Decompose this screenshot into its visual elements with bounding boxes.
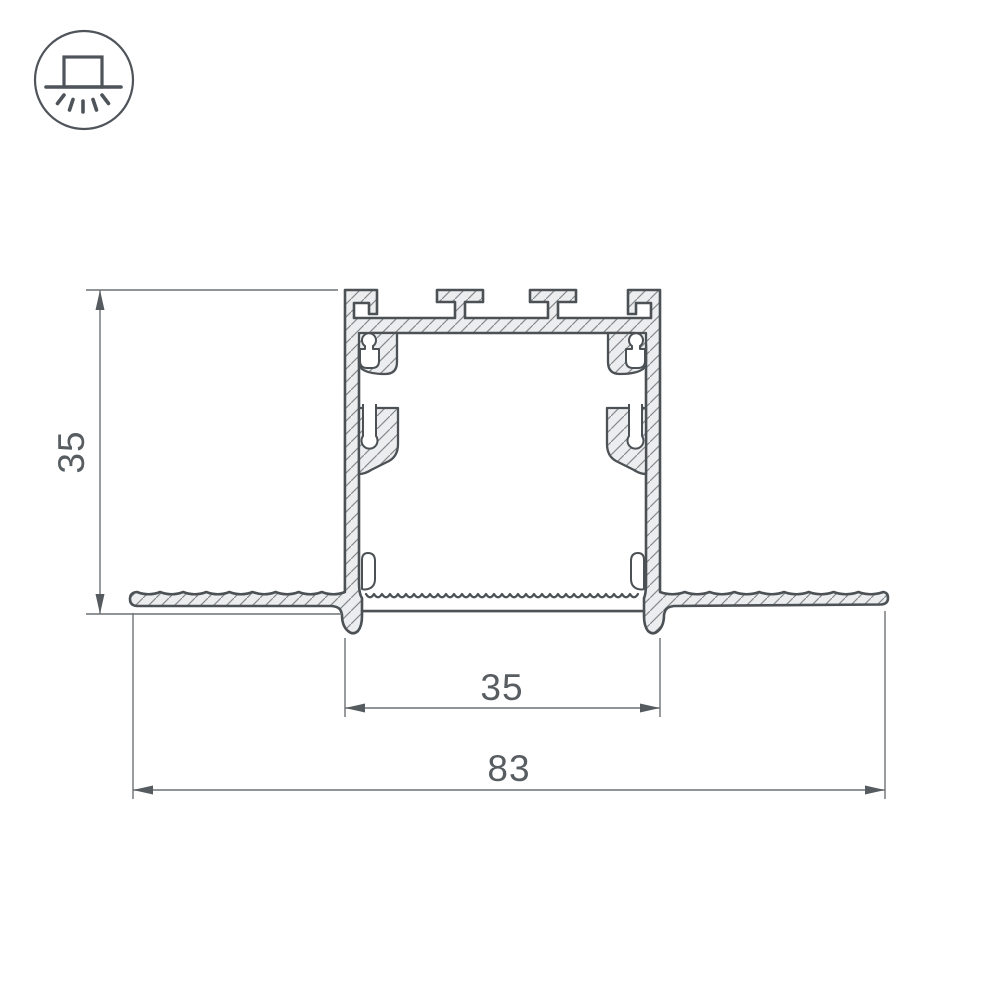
screw-boss-upper-right	[608, 333, 646, 374]
screw-boss-upper-left	[359, 333, 397, 374]
technical-drawing-canvas: 35 35 83	[0, 0, 1000, 1000]
inner-width-value: 35	[480, 667, 523, 708]
fixture-box-icon	[64, 57, 102, 87]
arrowhead-down	[96, 594, 105, 614]
height-value: 35	[51, 430, 92, 473]
clip-finger-left	[362, 553, 375, 590]
overall-width-value: 83	[487, 748, 530, 789]
arrowhead-right	[640, 704, 660, 713]
profile-cavity	[359, 333, 646, 611]
mount-type-icon	[35, 31, 133, 129]
light-rays-icon	[58, 95, 109, 112]
drawing-page: 35 35 83	[0, 0, 1000, 1000]
profile-cross-section	[130, 290, 888, 633]
arrowhead-left	[345, 704, 365, 713]
icon-circle	[35, 31, 133, 129]
dimension-height: 35	[51, 290, 342, 614]
dimension-inner-width: 35	[345, 638, 660, 717]
arrowhead-left	[133, 786, 153, 795]
clip-finger-right	[631, 553, 644, 590]
arrowhead-up	[96, 290, 105, 310]
arrowhead-right	[865, 786, 885, 795]
